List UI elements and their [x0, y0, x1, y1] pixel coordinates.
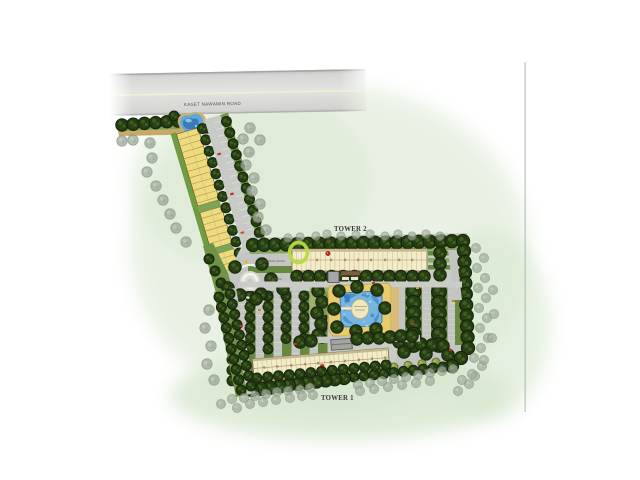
svg-text:TOWER 1: TOWER 1 — [321, 395, 354, 402]
svg-text:THANMADA: THANMADA — [266, 277, 282, 281]
svg-text:INTERNAL ROAD: INTERNAL ROAD — [262, 259, 285, 263]
